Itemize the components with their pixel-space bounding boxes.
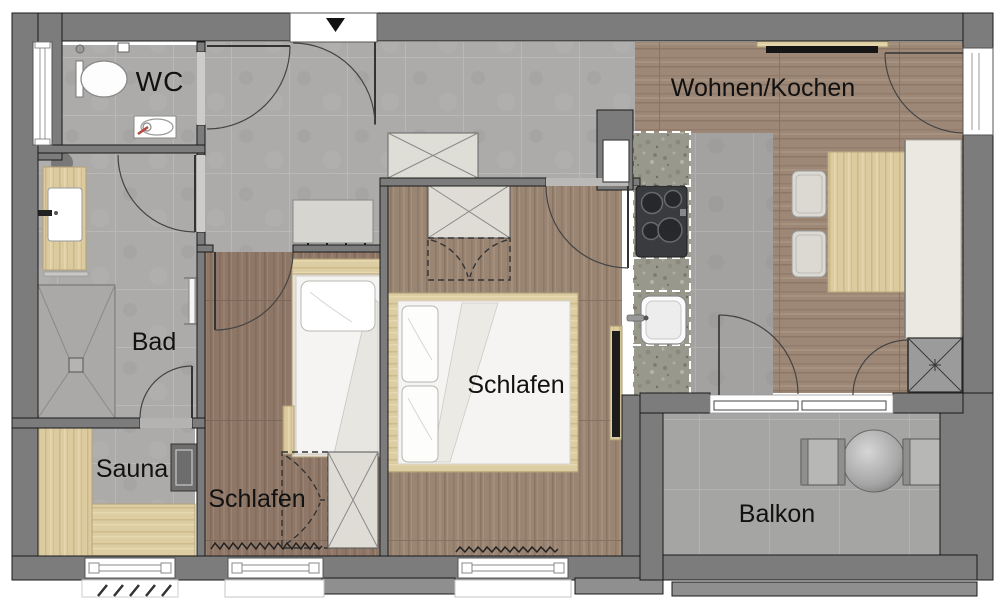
washbasin-icon [134, 116, 176, 138]
wall [893, 393, 963, 413]
coat-rack-icon [293, 200, 373, 251]
wall [377, 13, 993, 41]
wall [640, 393, 710, 413]
wall [940, 393, 993, 580]
wall [640, 413, 663, 580]
balcony-chair [801, 439, 845, 485]
floor-plan: WC Bad Sauna Schlafen Schlafen Wohnen/Ko… [0, 0, 1000, 612]
dining-chair [792, 231, 826, 277]
wall [622, 395, 640, 556]
wall [380, 178, 546, 186]
window [225, 558, 324, 597]
window [963, 48, 993, 135]
window [33, 42, 52, 145]
wc-wall-fixture-icon [76, 45, 84, 53]
hall-wardrobe-icon [388, 133, 478, 178]
room-label-bad: Bad [132, 328, 176, 356]
room-label-schlafen-main: Schlafen [467, 371, 564, 399]
tv-icon [612, 331, 620, 437]
sauna-bench-bottom [92, 504, 195, 556]
floor-plan-drawing: WC Bad Sauna Schlafen Schlafen Wohnen/Ko… [0, 0, 1000, 612]
room-label-sauna: Sauna [96, 455, 168, 483]
wall [672, 582, 977, 596]
window [82, 558, 178, 597]
sauna-heater-icon [171, 444, 197, 491]
wc-vent-icon [118, 43, 129, 52]
wall [663, 555, 977, 580]
shower-icon [38, 285, 115, 418]
interior-window [603, 140, 629, 182]
sauna-bench-left [38, 428, 92, 556]
wall [38, 145, 205, 153]
wall [192, 418, 205, 428]
single-bed [292, 259, 384, 457]
tv-icon [766, 46, 878, 53]
room-label-wc: WC [136, 66, 185, 97]
balcony-table [843, 430, 905, 492]
nightstand-icon [283, 406, 294, 454]
floor-kitchen-tile [688, 133, 773, 395]
cooktop-icon [636, 186, 687, 257]
wardrobe-icon [328, 452, 378, 548]
wall [197, 245, 213, 252]
bench [905, 140, 961, 338]
dining-table [828, 152, 906, 292]
room-label-balkon: Balkon [739, 500, 815, 528]
room-label-schlafen-small: Schlafen [208, 485, 305, 513]
wall [12, 418, 140, 428]
wall [322, 578, 455, 594]
wall [380, 186, 388, 556]
shaft-icon [908, 338, 962, 392]
bedroom-tv-sideboard [610, 326, 622, 440]
window [455, 558, 571, 597]
kitchen-counter [633, 132, 690, 395]
bad-washbasin-counter [37, 167, 88, 276]
wall [293, 245, 387, 252]
room-label-wohnen-kochen: Wohnen/Kochen [671, 74, 855, 102]
wall [197, 42, 205, 52]
dining-chair [792, 171, 826, 217]
wall [197, 252, 205, 556]
